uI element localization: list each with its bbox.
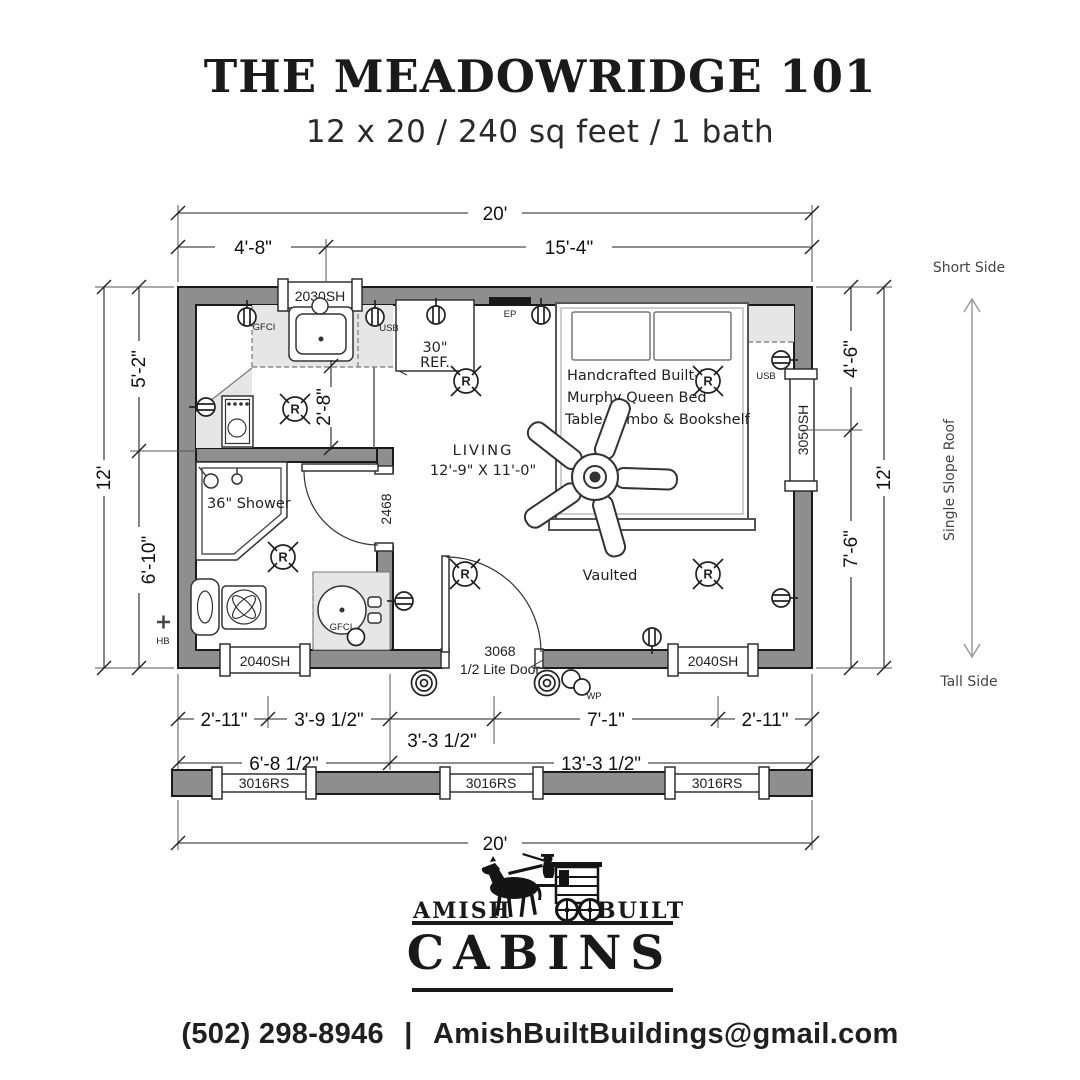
window-2040sh-left: 2040SH [220,644,310,676]
gfci-bath-label: GFCI [330,622,353,633]
electrical-panel: EP [489,297,531,320]
entry-door-type: 1/2 Lite Door [460,661,540,677]
dim-top-total: 20' [483,204,508,225]
dims-top: 20' 4'-8" 15'-4" [171,202,819,282]
porch-light-icon [535,671,560,696]
recessed-light-icon: R [693,559,723,589]
toilet [191,579,219,635]
contact-separator: | [398,1018,418,1050]
dim-b1-2: 3'-3 1/2" [407,731,477,752]
wp-label: WP [586,691,601,702]
usb-kitchen-label: USB [379,323,399,334]
roof-side-notes: Short Side Single Slope Roof Tall Side [933,260,1005,690]
porch-light-icon [412,671,437,696]
horse-and-wagon-icon [478,850,608,924]
roof-window-label-1: 3016RS [466,775,517,791]
dim-right-upper: 4'-6" [841,340,862,378]
dim-b1-1: 3'-9 1/2" [294,710,364,731]
shower-valve-icon [232,474,242,484]
roof-window-label-2: 3016RS [692,775,743,791]
tall-side-wall-strip: 3016RS 3016RS 3016RS 20' [171,767,819,855]
shower: 36" Shower [196,462,291,560]
logo-divider-top [412,921,673,925]
kitchen-sink [289,298,353,361]
ref-label: REF. [420,355,450,371]
shower-head-icon [204,474,218,488]
bed-note-1: Handcrafted Built-In [567,368,713,384]
short-side-label: Short Side [933,260,1005,276]
living-size: 12'-9" X 11'-0" [430,463,536,479]
ref-size: 30" [422,340,447,356]
dim-left-lower: 6'-10" [139,536,160,584]
single-slope-roof-label: Single Slope Roof [942,418,958,541]
contact-line: (502) 298-8946 | AmishBuiltBuildings@gma… [0,1018,1080,1051]
svg-text:R: R [278,550,288,565]
exhaust-fan-icon [222,586,266,629]
gfci-kitchen-label: GFCI [253,322,276,333]
email-address: AmishBuiltBuildings@gmail.com [427,1018,905,1050]
brand-cabins: CABINS [0,926,1080,981]
window-2040sh-right-label: 2040SH [688,653,739,669]
tall-side-label: Tall Side [939,674,997,690]
recessed-light-icon: R [280,394,310,424]
dim-b1-4: 2'-11" [742,710,789,731]
vaulted-label: Vaulted [583,568,638,584]
bathroom-door: 2468 [302,464,394,551]
pillow-right [654,312,731,360]
range-appliance [222,396,253,447]
window-2040sh-left-label: 2040SH [240,653,291,669]
recessed-light-icon: R [693,366,723,396]
dim-left-total: 12' [94,466,115,491]
dim-right-lower: 7'-6" [841,530,862,568]
bed-note-2: Murphy Queen Bed [567,390,707,406]
shower-label: 36" Shower [207,496,291,512]
dim-b1-3: 7'-1" [587,710,625,731]
bed-footboard [549,519,755,530]
recessed-light-icon: R [268,542,298,572]
phone-number: (502) 298-8946 [175,1018,390,1050]
ep-label: EP [504,309,517,320]
page: THE MEADOWRIDGE 101 12 x 20 / 240 sq fee… [0,0,1080,1080]
pillow-left [572,312,650,360]
svg-text:R: R [703,567,713,582]
svg-text:R: R [460,567,470,582]
roof-window-label-0: 3016RS [239,775,290,791]
hose-bib-icon: HB [156,616,170,648]
svg-text:R: R [461,374,471,389]
bed-note-3: Table Combo & Bookshelf [564,412,751,428]
logo-divider-bottom [412,988,673,992]
bathroom-door-size: 2468 [378,493,394,524]
entry-door-size: 3068 [484,643,515,659]
dim-kitchen-clearance: 2'-8" [314,359,338,455]
hb-label: HB [156,636,169,647]
usb-bed-label: USB [756,371,776,382]
recessed-light-icon: R [450,559,480,589]
svg-text:R: R [290,402,300,417]
dim-top-left: 4'-8" [234,238,272,259]
svg-text:2'-8": 2'-8" [314,388,335,426]
dims-bottom: 2'-11" 3'-9 1/2" 3'-3 1/2" 7'-1" 2'-11" … [171,674,819,775]
dim-b1-0: 2'-11" [201,710,248,731]
recessed-light-icon: R [451,366,481,396]
svg-text:R: R [703,374,713,389]
window-2040sh-right: 2040SH [668,644,758,676]
dim-top-right: 15'-4" [545,238,593,259]
dim-right-total: 12' [874,466,895,491]
living-label: LIVING [453,443,514,459]
dim-left-upper: 5'-2" [129,350,150,388]
